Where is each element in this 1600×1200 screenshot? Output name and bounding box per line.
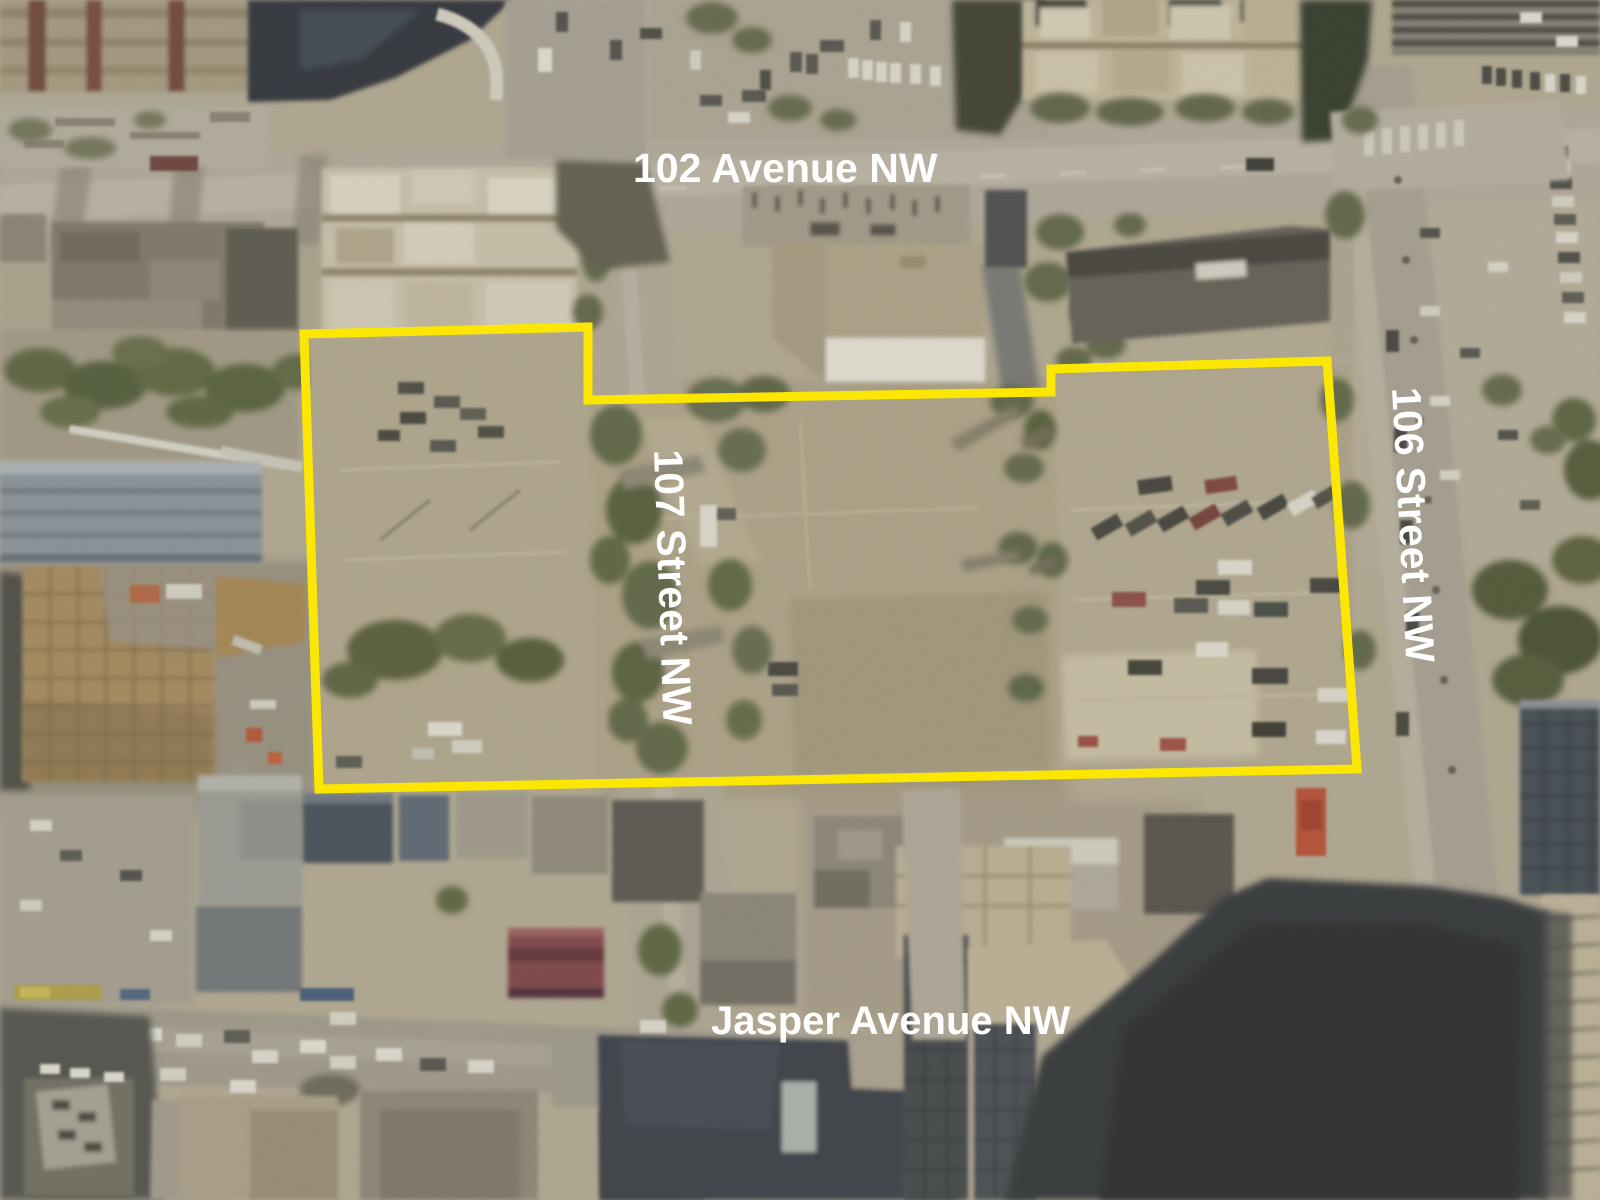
svg-text:102 Avenue NW: 102 Avenue NW — [633, 145, 938, 191]
svg-text:107 Street NW: 107 Street NW — [645, 449, 701, 726]
svg-text:Jasper Avenue NW: Jasper Avenue NW — [711, 999, 1071, 1043]
